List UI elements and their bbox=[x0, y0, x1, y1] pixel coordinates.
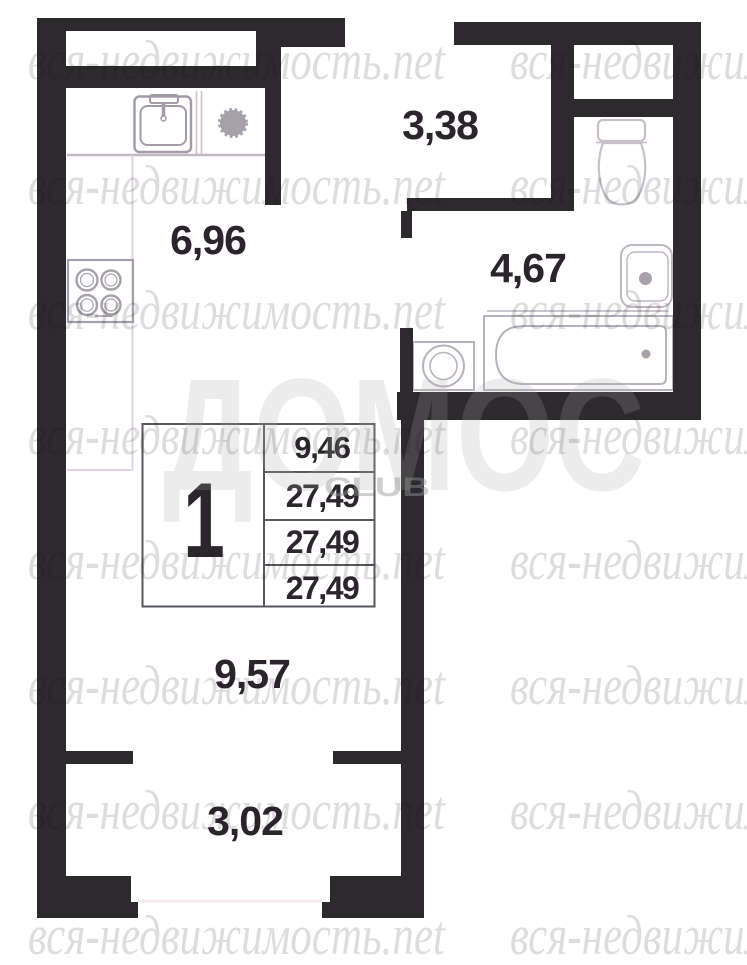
svg-text:вся-недвижимость.net: вся-недвижимость.net bbox=[510, 780, 747, 842]
svg-text:вся-недвижимость.net: вся-недвижимость.net bbox=[28, 155, 446, 217]
svg-text:3,38: 3,38 bbox=[402, 102, 478, 148]
svg-text:вся-недвижимость.net: вся-недвижимость.net bbox=[510, 530, 747, 592]
svg-text:вся-недвижимость.net: вся-недвижимость.net bbox=[28, 405, 446, 467]
svg-text:CLUB: CLUB bbox=[324, 472, 430, 502]
svg-text:вся-недвижимость.net: вся-недвижимость.net bbox=[28, 530, 446, 592]
svg-text:вся-недвижимость.net: вся-недвижимость.net bbox=[28, 30, 446, 92]
svg-text:вся-недвижимость.net: вся-недвижимость.net bbox=[510, 30, 747, 92]
svg-text:вся-недвижимость.net: вся-недвижимость.net bbox=[28, 780, 446, 842]
svg-text:вся-недвижимость.net: вся-недвижимость.net bbox=[28, 655, 446, 717]
svg-text:вся-недвижимость.net: вся-недвижимость.net bbox=[510, 280, 747, 342]
svg-text:вся-недвижимость.net: вся-недвижимость.net bbox=[510, 405, 747, 467]
svg-text:вся-недвижимость.net: вся-недвижимость.net bbox=[510, 155, 747, 217]
svg-text:вся-недвижимость.net: вся-недвижимость.net bbox=[510, 905, 747, 960]
svg-text:вся-недвижимость.net: вся-недвижимость.net bbox=[28, 280, 446, 342]
svg-text:вся-недвижимость.net: вся-недвижимость.net bbox=[28, 905, 446, 960]
svg-text:вся-недвижимость.net: вся-недвижимость.net bbox=[510, 655, 747, 717]
svg-text:6,96: 6,96 bbox=[170, 217, 246, 263]
